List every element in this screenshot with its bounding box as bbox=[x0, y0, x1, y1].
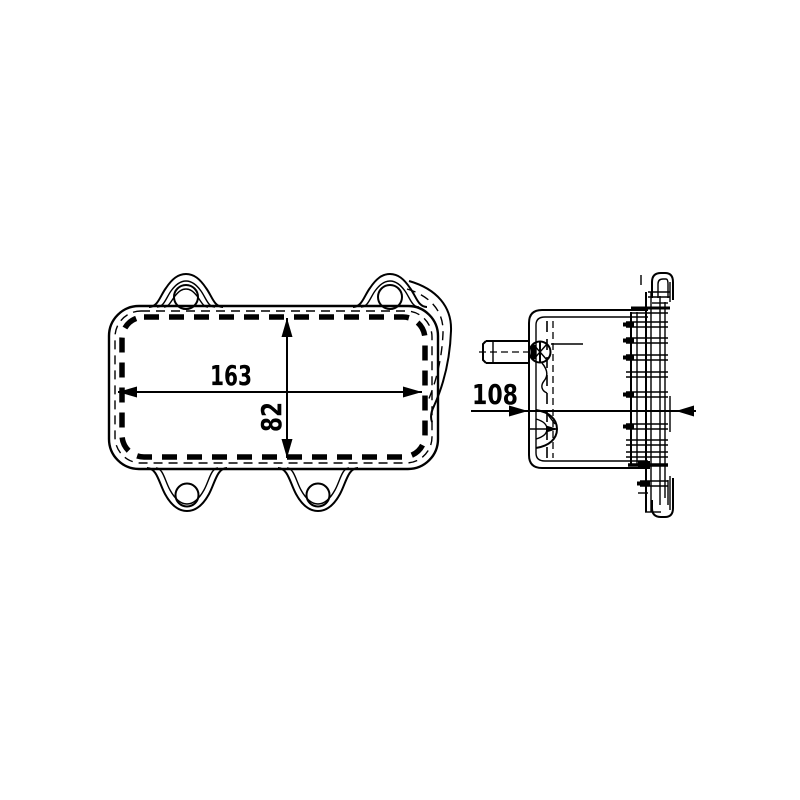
mounting-ear-top-left bbox=[149, 274, 223, 309]
side-depth-label: 108 bbox=[472, 378, 518, 411]
oil-pipe-stub bbox=[479, 341, 531, 363]
front-height-label: 82 bbox=[255, 402, 288, 432]
front-width-label: 163 bbox=[210, 359, 252, 392]
front-view: 163 82 bbox=[109, 274, 451, 511]
arrow-left-icon bbox=[676, 406, 694, 417]
oil-cooler-drawing: 163 82 bbox=[0, 0, 800, 800]
width-dimension: 163 bbox=[118, 359, 422, 398]
mounting-ear-bottom-center bbox=[278, 468, 358, 511]
pipe-fitting bbox=[530, 342, 584, 394]
side-view: 108 bbox=[471, 273, 696, 517]
mounting-ear-top-right bbox=[353, 274, 427, 309]
arrow-up-icon bbox=[282, 318, 293, 337]
technical-drawing-canvas: 163 82 bbox=[0, 0, 800, 800]
mounting-ear-bottom-left bbox=[147, 468, 227, 511]
flange-plate-stack bbox=[623, 282, 670, 512]
gasket-outline-thin bbox=[115, 311, 432, 463]
lower-port-boss bbox=[529, 410, 558, 448]
side-tab-contour bbox=[409, 281, 451, 422]
mounting-hole-bottom-center bbox=[307, 484, 330, 507]
seal-groove-outline bbox=[122, 317, 425, 457]
height-dimension: 82 bbox=[255, 318, 293, 458]
mounting-hole-bottom-left bbox=[176, 484, 199, 507]
arrow-right-icon bbox=[403, 387, 422, 398]
front-outline bbox=[109, 306, 438, 469]
